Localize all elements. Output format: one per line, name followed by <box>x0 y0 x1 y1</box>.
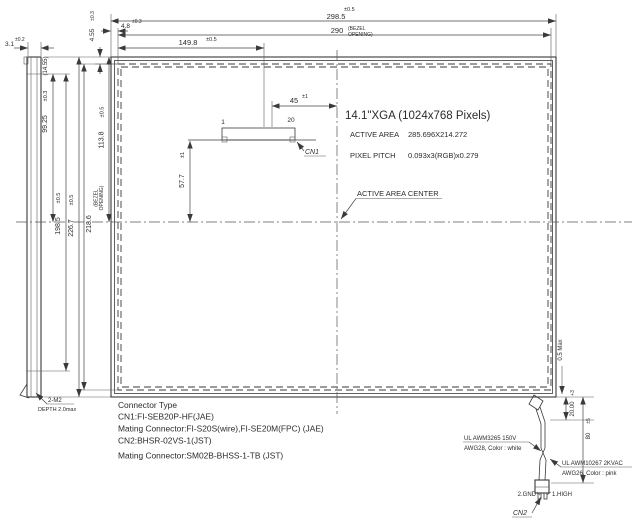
dim-bezel-margin-top-tol: ±0.3 <box>90 11 96 21</box>
note-cn2-mating: Mating Connector:SM02B-BHSS-1-TB (JST) <box>118 451 283 461</box>
dim-cn1-to-center-value: 45 <box>290 96 298 105</box>
dim-wire-exit: 20.00 +3 <box>550 390 594 420</box>
cn2-connector-body <box>535 480 549 493</box>
pixel-pitch-value: 0.093x3(RGB)x0.279 <box>408 151 478 160</box>
cn1-connector: 1 20 CN1 <box>188 117 326 156</box>
dim-wire-exit-tol: +3 <box>570 390 576 396</box>
dim-bezel-margin-left-tol: ±0.3 <box>132 19 142 25</box>
dim-wire-length-tol: ±5 <box>586 418 592 424</box>
wire-pink-color: AWG26, Color : pink <box>562 471 617 477</box>
note-connector-type: Connector Type <box>118 400 177 410</box>
cn1-pin20-label: 20 <box>287 117 295 124</box>
dim-wire-exit-value: 20.00 <box>570 401 576 417</box>
active-area-label: ACTIVE AREA <box>350 130 399 139</box>
dim-total-height-value: 226.7 <box>68 219 75 237</box>
dim-bezel-width-note2: OPENING) <box>348 32 373 38</box>
dim-cn1-offset-x-tol: ±0.5 <box>206 37 217 43</box>
active-area-center-callout: ACTIVE AREA CENTER <box>341 189 442 219</box>
cn2-pin-1 <box>544 493 547 499</box>
front-view <box>16 50 632 414</box>
dim-mount-pitch: 198.5 ±0.5 <box>55 74 66 371</box>
dim-mount-half-pitch-tol: ±0.3 <box>43 91 49 102</box>
cn1-pin1-label: 1 <box>221 119 225 126</box>
dim-side-thickness: 3.1 ±0.2 (14.55) <box>5 37 54 76</box>
dim-wire-length-value: 80 <box>586 432 592 439</box>
dim-cn1-below-value: 57.7 <box>179 174 186 188</box>
mounting-foot <box>20 384 29 398</box>
dim-side-thickness-ref: (14.55) <box>43 56 49 75</box>
note-cn1: CN1:FI-SEB20P-HF(JAE) <box>118 412 214 422</box>
lamp-wire-assembly <box>529 395 549 499</box>
dim-center-offset-y-tol: ±0.5 <box>100 107 106 118</box>
dim-edge-gap-value: 0.5 Max <box>558 339 564 360</box>
spec-block: 14.1"XGA (1024x768 Pixels) ACTIVE AREA 2… <box>345 110 491 160</box>
mounting-callout: 2-M2 DEPTH 2.0max <box>36 393 76 413</box>
dim-total-width-tol: ±0.5 <box>344 7 355 13</box>
active-area-value: 285.696X214.272 <box>408 130 467 139</box>
dim-mount-pitch-value: 198.5 <box>55 217 62 235</box>
cn2-label: CN2 <box>513 510 527 517</box>
note-cn1-mating: Mating Connector:FI-S20S(wire),FI-SE20M(… <box>118 424 324 434</box>
dim-side-thickness-tol: ±0.2 <box>15 37 25 43</box>
wire-white-callout: UL AWM3265 150V AWG28, Color : white <box>463 436 541 452</box>
dim-cn1-offset-x-value: 149.8 <box>179 38 198 47</box>
dim-mount-half-pitch: 99.25 ±0.3 <box>42 74 53 222</box>
connector-notes: Connector Type CN1:FI-SEB20P-HF(JAE) Mat… <box>118 400 324 461</box>
mounting-depth-label: DEPTH 2.0max <box>38 407 76 413</box>
wire-white-spec: UL AWM3265 150V <box>464 436 516 442</box>
dim-side-thickness-value: 3.1 <box>5 41 14 48</box>
dim-cn1-to-center: 45 ±1 <box>272 94 337 127</box>
dim-cn1-below-tol: ±1 <box>180 152 186 158</box>
wire-white-color: AWG28, Color : white <box>464 446 522 452</box>
cn2-high-label: 1.HIGH <box>552 492 572 498</box>
drawing-canvas: 1 20 CN1 298.5 ±0.5 290 (BEZEL OPENING) … <box>0 0 634 525</box>
dim-edge-gap: 0.5 Max <box>558 339 564 394</box>
wire-pink-spec: UL AWM10267 2KVAC <box>562 461 623 467</box>
dim-mount-pitch-tol: ±0.5 <box>56 193 62 204</box>
dim-total-height-tol: ±0.5 <box>69 195 75 206</box>
dim-mount-half-pitch-value: 99.25 <box>42 115 49 133</box>
dim-bezel-margin-top: 4.55 ±0.3 <box>89 11 118 74</box>
wire-pink-callout: UL AWM10267 2KVAC AWG26, Color : pink <box>550 459 632 477</box>
dim-center-offset-y-value: 113.8 <box>99 131 106 148</box>
dim-cn1-offset-x: 149.8 ±0.5 <box>118 37 264 127</box>
mounting-label: 2-M2 <box>48 398 62 404</box>
dim-bezel-height-value: 218.6 <box>86 215 93 233</box>
cn2-callout: CN2 <box>512 497 541 517</box>
dim-bezel-margin-top-value: 4.55 <box>89 28 96 41</box>
dim-cn1-below: 57.7 ±1 <box>179 141 190 222</box>
dim-bezel-width-value: 290 <box>331 26 344 35</box>
panel-title: 14.1"XGA (1024x768 Pixels) <box>345 110 491 122</box>
dim-total-height: 226.7 ±0.5 <box>68 57 79 397</box>
dim-bezel-height-note2: OPENING) <box>99 185 105 210</box>
dim-total-width-value: 298.5 <box>327 12 346 21</box>
lcd-panel-outline-drawing: 1 20 CN1 298.5 ±0.5 290 (BEZEL OPENING) … <box>0 0 634 525</box>
active-area-center-label: ACTIVE AREA CENTER <box>357 189 439 198</box>
cn2-gnd-label: 2.GND <box>518 492 537 498</box>
note-cn2: CN2:BHSR-02VS-1(JST) <box>118 436 212 446</box>
cn1-label: CN1 <box>305 149 319 156</box>
dim-bezel-margin-left-value: 4.8 <box>121 23 130 30</box>
dim-cn1-to-center-tol: ±1 <box>302 94 308 100</box>
pixel-pitch-label: PIXEL PITCH <box>350 151 396 160</box>
side-view <box>20 57 41 398</box>
